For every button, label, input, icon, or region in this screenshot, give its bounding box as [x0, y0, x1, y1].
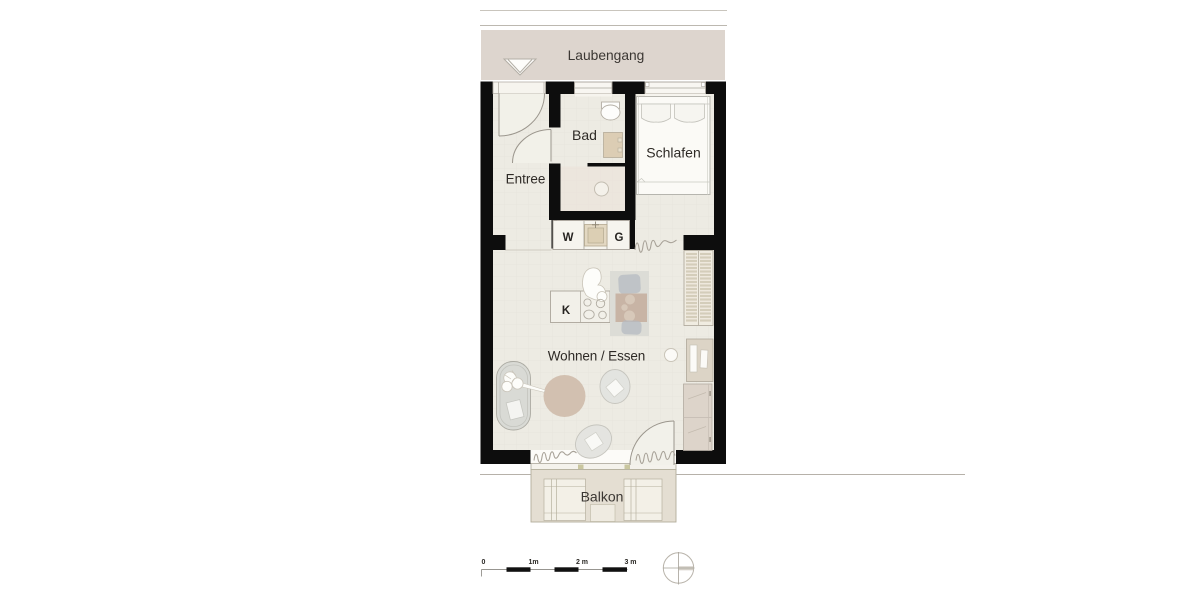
svg-text:W: W — [563, 232, 574, 244]
svg-text:1m: 1m — [528, 559, 538, 566]
svg-text:Bad: Bad — [572, 127, 597, 143]
svg-text:3 m: 3 m — [624, 559, 636, 566]
svg-text:Balkon: Balkon — [581, 489, 624, 505]
svg-text:G: G — [615, 232, 624, 244]
svg-text:Entree: Entree — [506, 172, 546, 187]
svg-text:K: K — [562, 305, 571, 317]
svg-text:0: 0 — [482, 559, 486, 566]
svg-text:2 m: 2 m — [576, 559, 588, 566]
svg-text:Schlafen: Schlafen — [646, 145, 700, 161]
svg-text:Wohnen / Essen: Wohnen / Essen — [548, 349, 645, 364]
svg-text:Laubengang: Laubengang — [568, 48, 645, 63]
